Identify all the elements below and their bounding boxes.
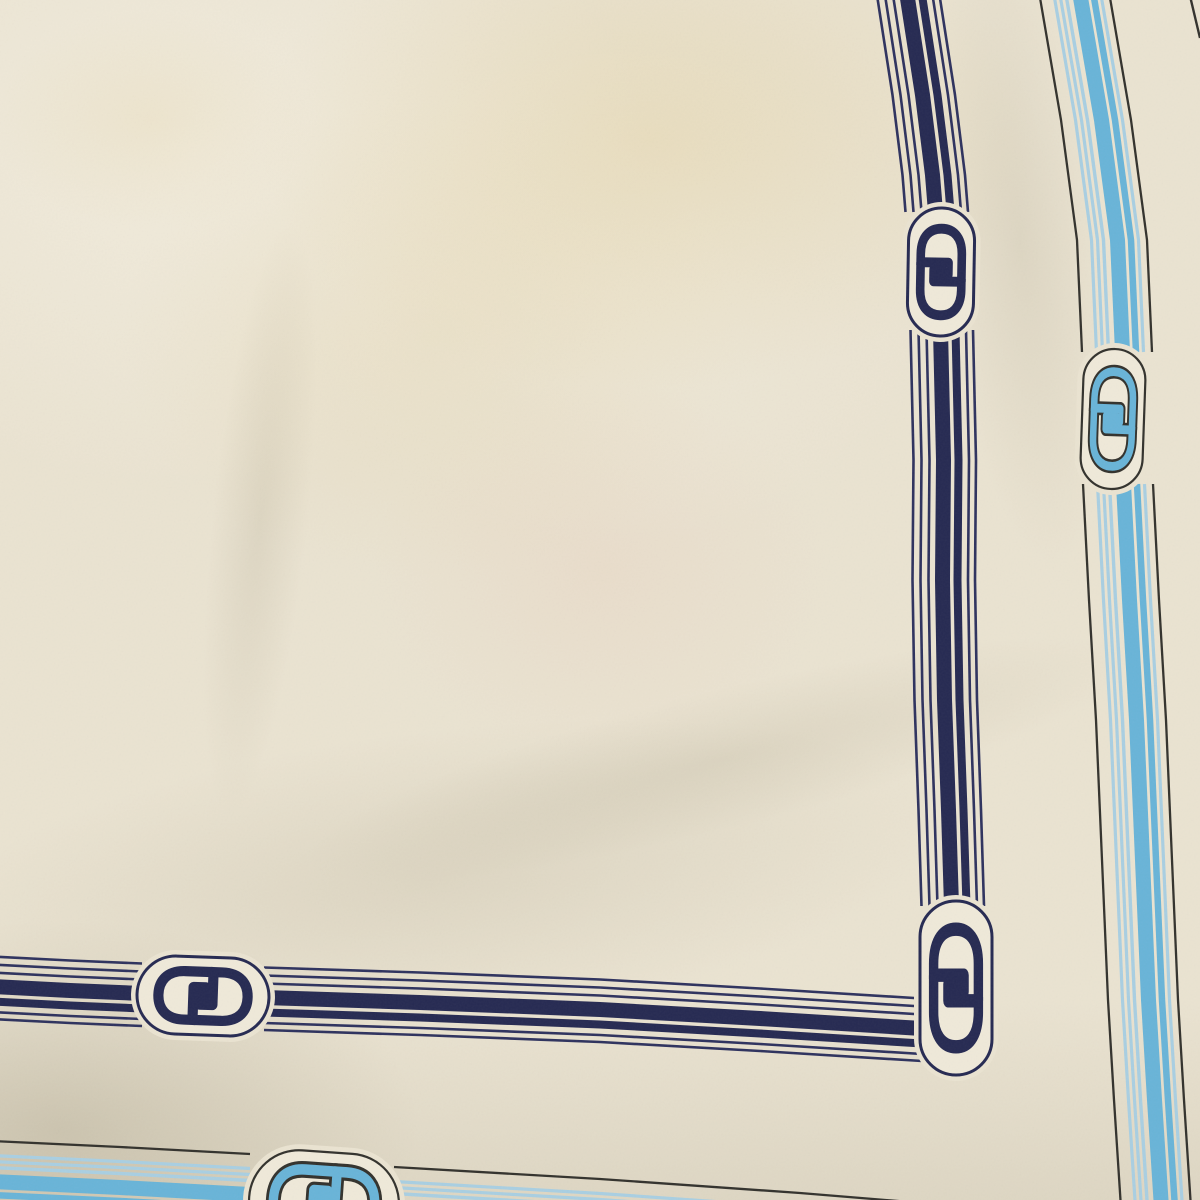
scarf-photo-canvas [0, 0, 1200, 1200]
scarf-photo: Close-up photograph of a cream vintage s… [0, 0, 1200, 1200]
fabric-grain [0, 0, 1200, 1200]
